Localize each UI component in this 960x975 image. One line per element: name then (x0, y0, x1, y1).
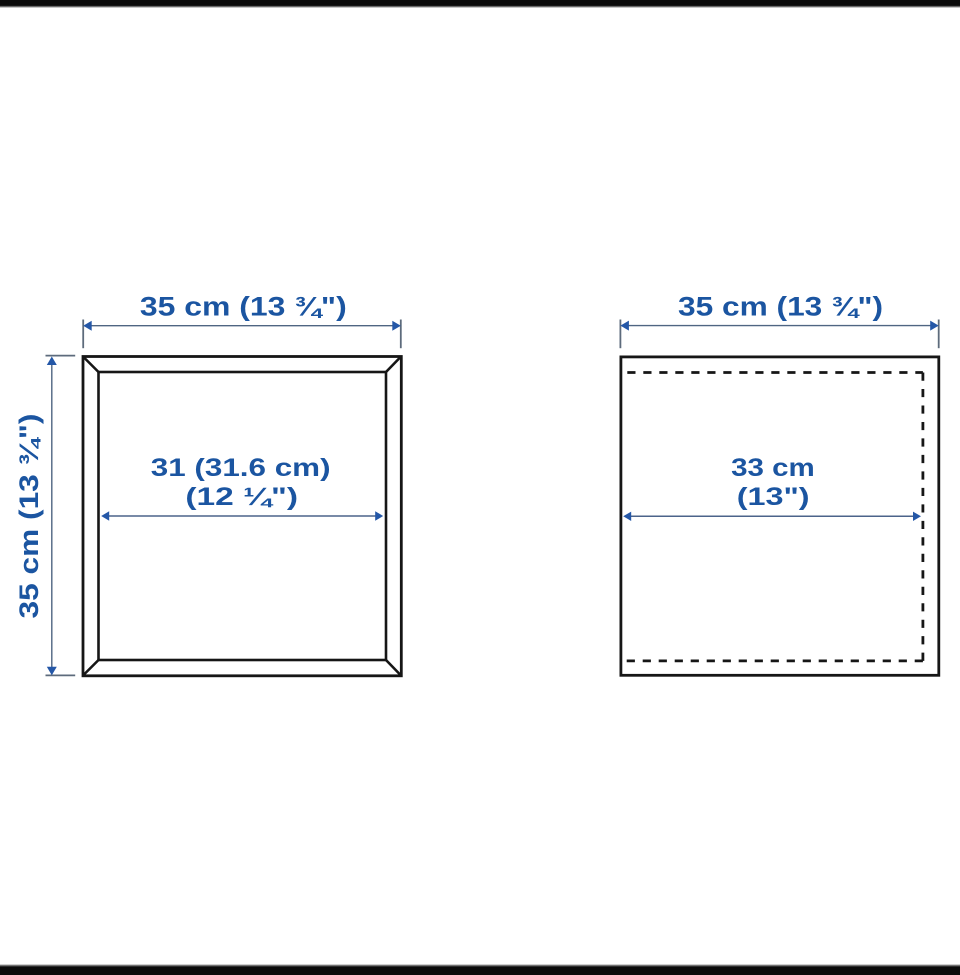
svg-text:35 cm (13 ¾"): 35 cm (13 ¾") (14, 414, 44, 619)
svg-text:35 cm (13 ¾"): 35 cm (13 ¾") (678, 292, 883, 322)
svg-text:(12 ¼"): (12 ¼") (185, 483, 298, 511)
svg-text:35 cm (13 ¾"): 35 cm (13 ¾") (140, 292, 347, 322)
svg-text:(13"): (13") (737, 483, 810, 511)
svg-text:31 (31.6 cm): 31 (31.6 cm) (151, 454, 331, 482)
svg-text:33 cm: 33 cm (731, 453, 815, 481)
